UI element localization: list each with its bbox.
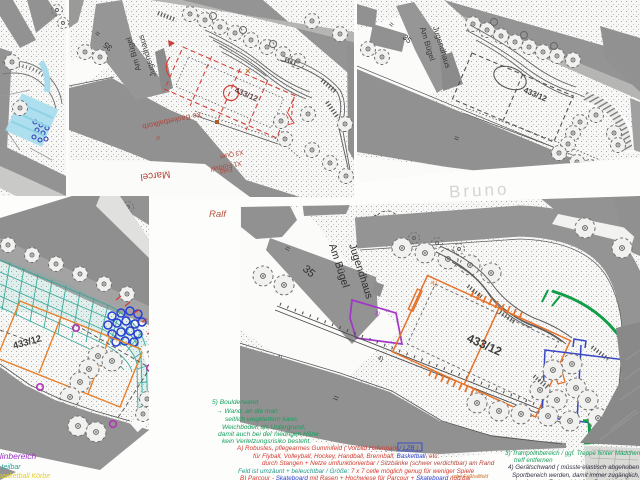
svg-text:4) Gerätschwand ( müsste elast: 4) Gerätschwand ( müsste elastisch abgeh… — [508, 464, 640, 471]
svg-text:kein Verletzungsrisiko besteht: kein Verletzungsrisiko besteht. — [222, 438, 311, 445]
svg-text:→ Wand, an die man: → Wand, an die man — [216, 408, 278, 415]
svg-text:3) Trampolinbereich / ggf. Tre: 3) Trampolinbereich / ggf. Treppe hinter… — [505, 450, 640, 457]
svg-text:für Flyball, Volleyball, Hocke: für Flyball, Volleyball, Hockey, Handbal… — [253, 453, 439, 460]
svg-text:B) Parcour - Skateboard mit Ra: B) Parcour - Skateboard mit Rasen + Hoch… — [240, 475, 472, 480]
svg-text:Ralf: Ralf — [209, 209, 227, 220]
svg-text:Weichboden als Untergrund,: Weichboden als Untergrund, — [222, 424, 306, 431]
svg-text:Sportbereich werden, damit imm: Sportbereich werden, damit immer zugängl… — [512, 472, 640, 479]
svg-text:treff entfernen: treff entfernen — [514, 457, 553, 464]
svg-text:llinbereich: llinbereich — [0, 451, 37, 461]
svg-text:seitlich wegklettern kann.: seitlich wegklettern kann. — [225, 416, 299, 423]
svg-text:Bruno: Bruno — [449, 179, 510, 201]
svg-text:basketball Körbe: basketball Körbe — [0, 473, 50, 480]
svg-text:5) Boulderwand: 5) Boulderwand — [212, 399, 259, 406]
svg-text:A) Robustes, pflegearmes Gummi: A) Robustes, pflegearmes Gummifeld ( Vor… — [236, 445, 418, 452]
svg-text:oder Fußballfeld: oder Fußballfeld — [452, 474, 488, 480]
svg-text:durch Stangen + Netze umfunkti: durch Stangen + Netze umfunktionierbar /… — [262, 460, 495, 467]
svg-text:damit auch bei der niedrigen H: damit auch bei der niedrigen Höhe — [218, 431, 319, 438]
svg-text:Feld ist umzäunt + beleuchtbar: Feld ist umzäunt + beleuchtbar / Größe: … — [238, 468, 475, 475]
svg-text:l teilbar: l teilbar — [0, 464, 21, 471]
